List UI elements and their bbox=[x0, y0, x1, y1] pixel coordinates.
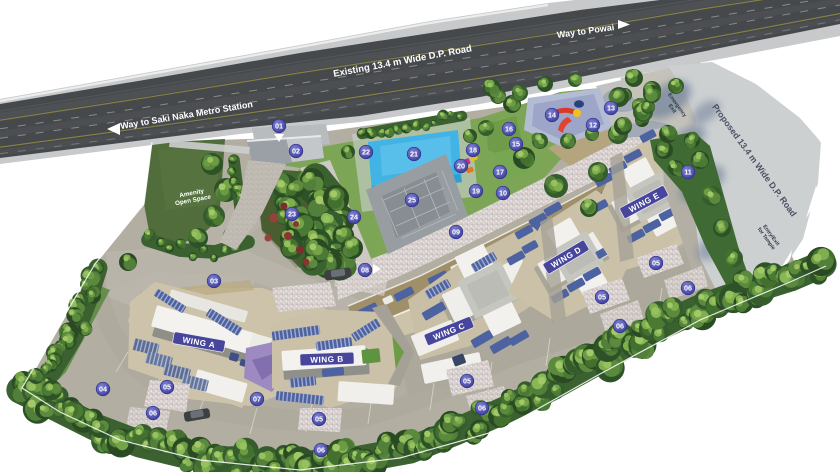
svg-text:20: 20 bbox=[457, 162, 465, 171]
svg-text:23: 23 bbox=[288, 210, 296, 219]
svg-text:16: 16 bbox=[505, 125, 513, 134]
svg-text:04: 04 bbox=[99, 385, 107, 394]
svg-text:09: 09 bbox=[452, 228, 460, 237]
svg-text:17: 17 bbox=[496, 168, 504, 177]
svg-text:05: 05 bbox=[163, 383, 171, 392]
svg-text:21: 21 bbox=[410, 150, 418, 159]
svg-text:06: 06 bbox=[684, 284, 692, 293]
svg-text:05: 05 bbox=[463, 377, 471, 386]
svg-text:03: 03 bbox=[210, 277, 218, 286]
svg-text:05: 05 bbox=[598, 293, 606, 302]
svg-text:14: 14 bbox=[548, 111, 556, 120]
svg-text:WING B: WING B bbox=[310, 355, 344, 365]
svg-text:06: 06 bbox=[149, 409, 157, 418]
svg-text:06: 06 bbox=[478, 404, 486, 413]
svg-text:15: 15 bbox=[512, 140, 520, 149]
svg-text:05: 05 bbox=[652, 259, 660, 268]
svg-text:25: 25 bbox=[408, 196, 416, 205]
svg-text:10: 10 bbox=[499, 189, 507, 198]
svg-text:18: 18 bbox=[469, 146, 477, 155]
svg-text:11: 11 bbox=[684, 168, 692, 177]
svg-text:05: 05 bbox=[315, 415, 323, 424]
svg-text:13: 13 bbox=[607, 104, 615, 113]
svg-text:08: 08 bbox=[361, 266, 369, 275]
svg-text:22: 22 bbox=[362, 148, 370, 157]
svg-text:01: 01 bbox=[275, 122, 283, 131]
svg-text:07: 07 bbox=[253, 395, 261, 404]
svg-text:12: 12 bbox=[589, 121, 597, 130]
svg-text:02: 02 bbox=[292, 147, 300, 156]
svg-text:19: 19 bbox=[472, 187, 480, 196]
svg-text:24: 24 bbox=[350, 213, 358, 222]
svg-text:06: 06 bbox=[616, 322, 624, 331]
svg-text:06: 06 bbox=[317, 446, 325, 455]
